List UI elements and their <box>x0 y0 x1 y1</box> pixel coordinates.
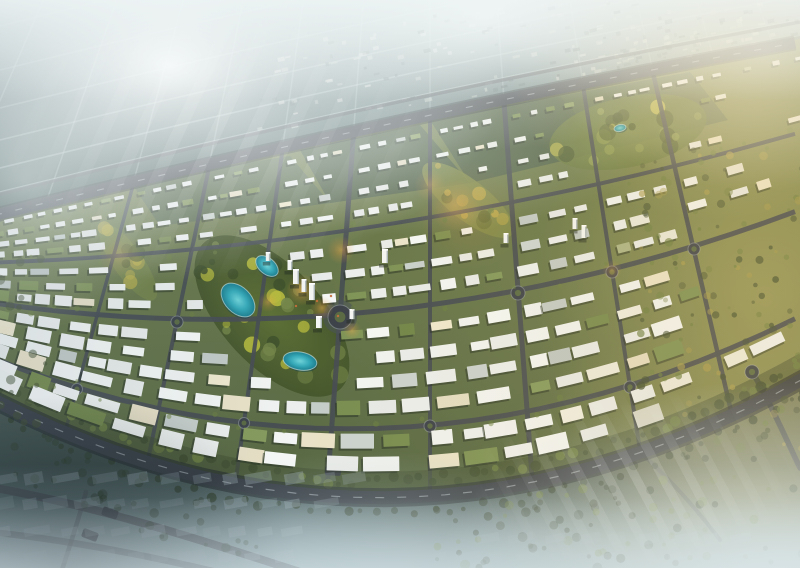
bottom-edge-fade <box>0 498 800 568</box>
masterplan-aerial-render <box>0 0 800 568</box>
top-edge-fade <box>0 0 800 100</box>
atmosphere-fog-layer <box>0 0 800 568</box>
